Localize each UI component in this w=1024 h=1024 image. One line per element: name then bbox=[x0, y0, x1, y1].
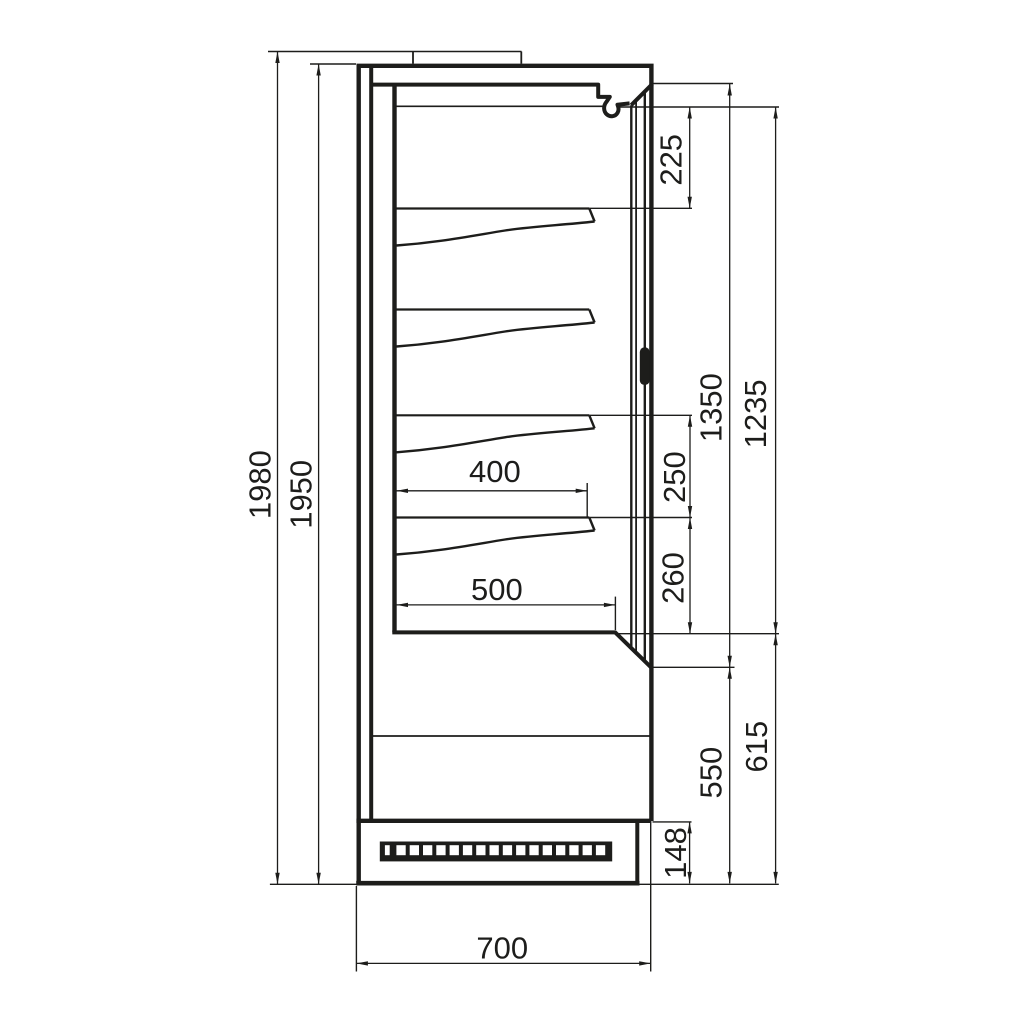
svg-text:700: 700 bbox=[476, 931, 528, 966]
svg-text:1980: 1980 bbox=[242, 450, 277, 519]
svg-text:400: 400 bbox=[469, 454, 521, 489]
svg-text:225: 225 bbox=[654, 134, 689, 186]
svg-text:550: 550 bbox=[693, 747, 728, 799]
svg-text:250: 250 bbox=[657, 451, 692, 503]
svg-text:1235: 1235 bbox=[738, 379, 773, 448]
svg-text:615: 615 bbox=[739, 721, 774, 773]
svg-text:260: 260 bbox=[656, 552, 691, 604]
svg-text:148: 148 bbox=[658, 827, 693, 879]
svg-text:1350: 1350 bbox=[693, 373, 728, 442]
svg-text:500: 500 bbox=[471, 572, 523, 607]
svg-text:1950: 1950 bbox=[284, 460, 319, 529]
